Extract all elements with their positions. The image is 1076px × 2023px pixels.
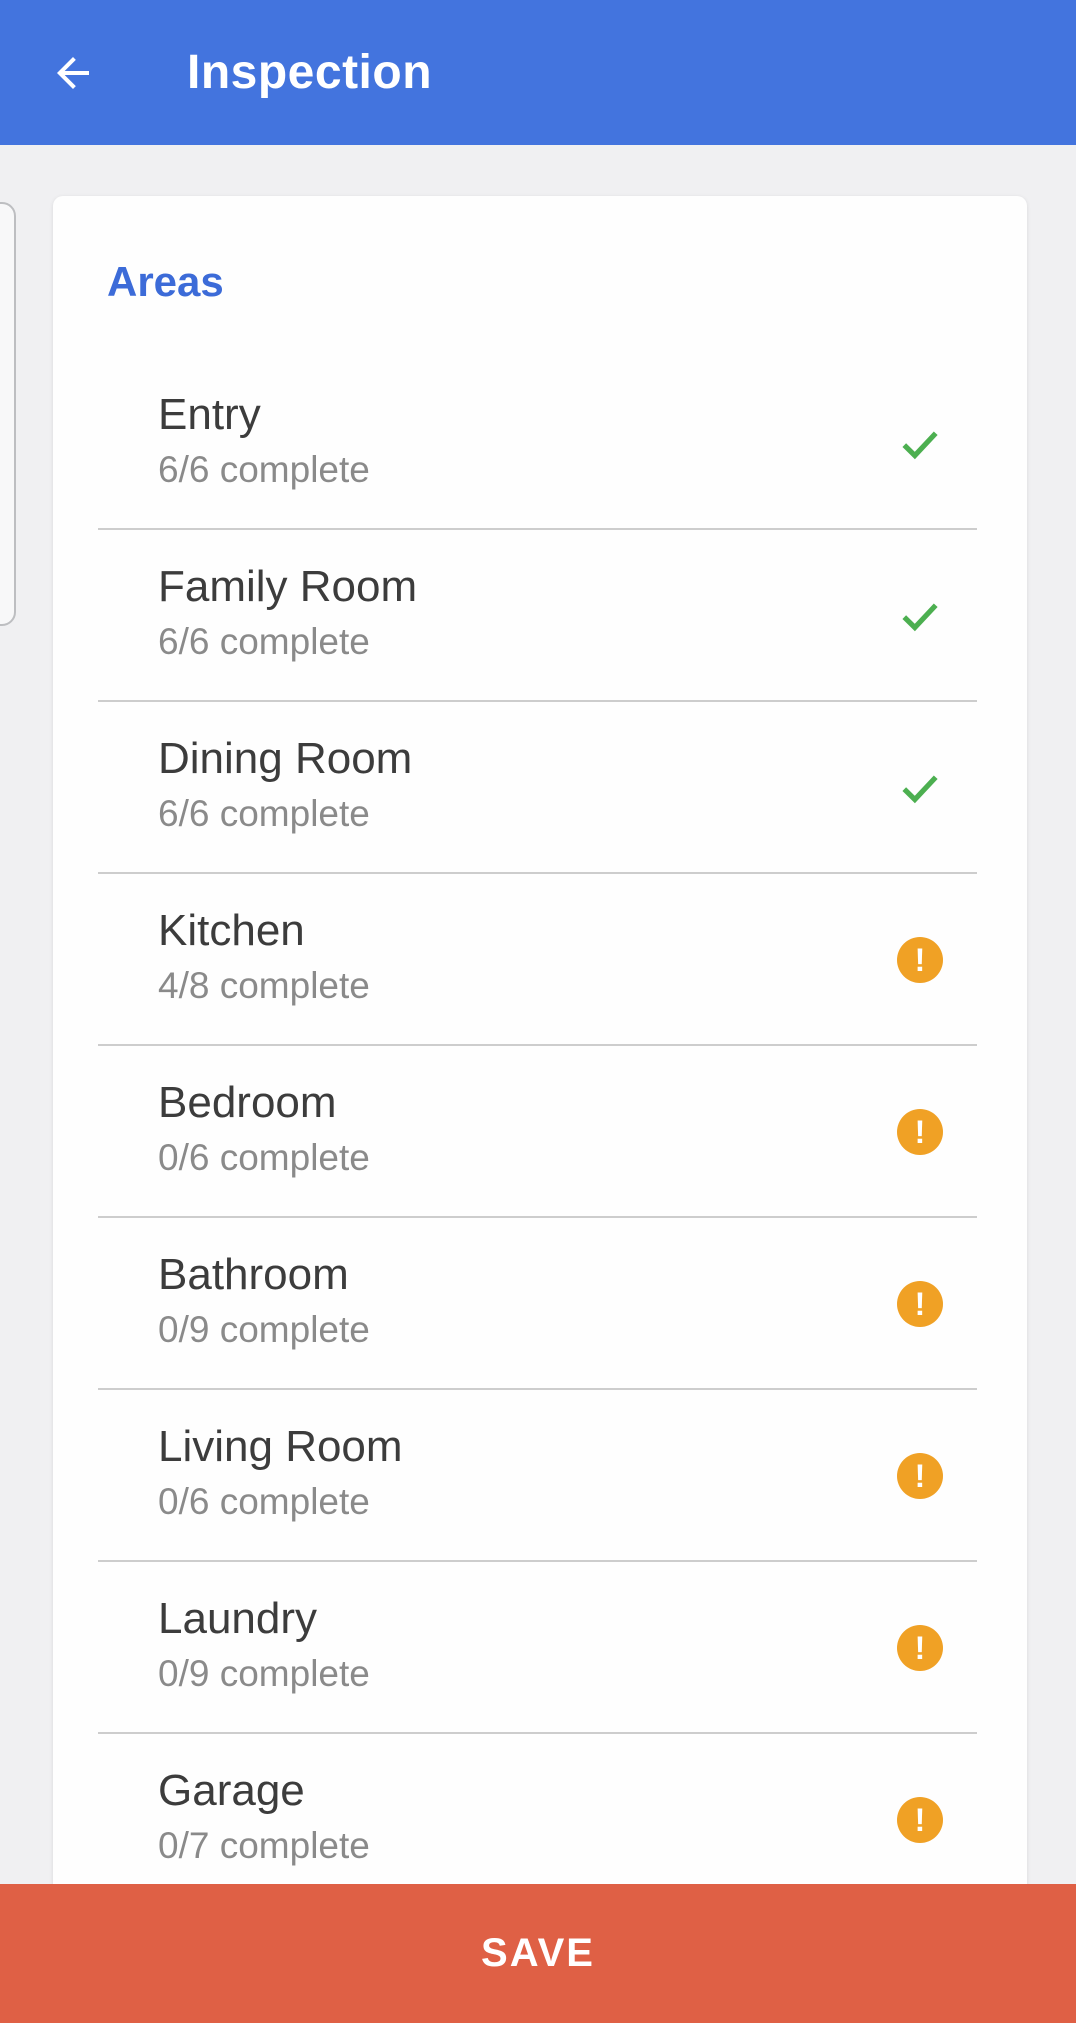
area-row[interactable]: Garage 0/7 complete ! [53, 1734, 1027, 1906]
warning-exclamation-icon: ! [897, 1281, 943, 1327]
area-name: Bathroom [53, 1218, 1027, 1302]
area-name: Living Room [53, 1390, 1027, 1474]
areas-card: Areas Entry 6/6 complete Family Room 6/6… [53, 196, 1027, 2023]
area-row[interactable]: Living Room 0/6 complete ! [53, 1390, 1027, 1562]
area-progress: 6/6 complete [53, 446, 1027, 494]
area-name: Laundry [53, 1562, 1027, 1646]
area-progress: 0/9 complete [53, 1650, 1027, 1698]
areas-list: Entry 6/6 complete Family Room 6/6 compl… [53, 358, 1027, 1906]
exclamation-glyph: ! [897, 1797, 943, 1843]
check-icon [897, 421, 943, 467]
check-icon [897, 765, 943, 811]
inspection-screen: Inspection Areas Entry 6/6 complete Fami… [0, 0, 1076, 2023]
previous-card-edge [0, 202, 16, 626]
area-name: Dining Room [53, 702, 1027, 786]
warning-exclamation-icon: ! [897, 937, 943, 983]
save-button-label: SAVE [481, 1931, 595, 1976]
area-row[interactable]: Bathroom 0/9 complete ! [53, 1218, 1027, 1390]
exclamation-glyph: ! [897, 937, 943, 983]
area-progress: 0/7 complete [53, 1822, 1027, 1870]
exclamation-glyph: ! [897, 1453, 943, 1499]
area-progress: 4/8 complete [53, 962, 1027, 1010]
area-progress: 0/9 complete [53, 1306, 1027, 1354]
app-bar: Inspection [0, 0, 1076, 145]
page-title: Inspection [187, 45, 432, 100]
area-name: Bedroom [53, 1046, 1027, 1130]
area-row[interactable]: Dining Room 6/6 complete [53, 702, 1027, 874]
arrow-left-icon [49, 49, 97, 97]
area-progress: 6/6 complete [53, 618, 1027, 666]
area-name: Garage [53, 1734, 1027, 1818]
back-button[interactable] [47, 47, 99, 99]
area-row[interactable]: Laundry 0/9 complete ! [53, 1562, 1027, 1734]
warning-exclamation-icon: ! [897, 1453, 943, 1499]
area-progress: 6/6 complete [53, 790, 1027, 838]
warning-exclamation-icon: ! [897, 1625, 943, 1671]
area-row[interactable]: Kitchen 4/8 complete ! [53, 874, 1027, 1046]
exclamation-glyph: ! [897, 1625, 943, 1671]
warning-exclamation-icon: ! [897, 1797, 943, 1843]
area-row[interactable]: Family Room 6/6 complete [53, 530, 1027, 702]
exclamation-glyph: ! [897, 1109, 943, 1155]
save-button[interactable]: SAVE [0, 1884, 1076, 2023]
area-name: Family Room [53, 530, 1027, 614]
area-progress: 0/6 complete [53, 1478, 1027, 1526]
area-name: Kitchen [53, 874, 1027, 958]
exclamation-glyph: ! [897, 1281, 943, 1327]
check-icon [897, 593, 943, 639]
areas-heading: Areas [53, 196, 1027, 306]
area-name: Entry [53, 358, 1027, 442]
area-row[interactable]: Entry 6/6 complete [53, 358, 1027, 530]
area-row[interactable]: Bedroom 0/6 complete ! [53, 1046, 1027, 1218]
warning-exclamation-icon: ! [897, 1109, 943, 1155]
area-progress: 0/6 complete [53, 1134, 1027, 1182]
